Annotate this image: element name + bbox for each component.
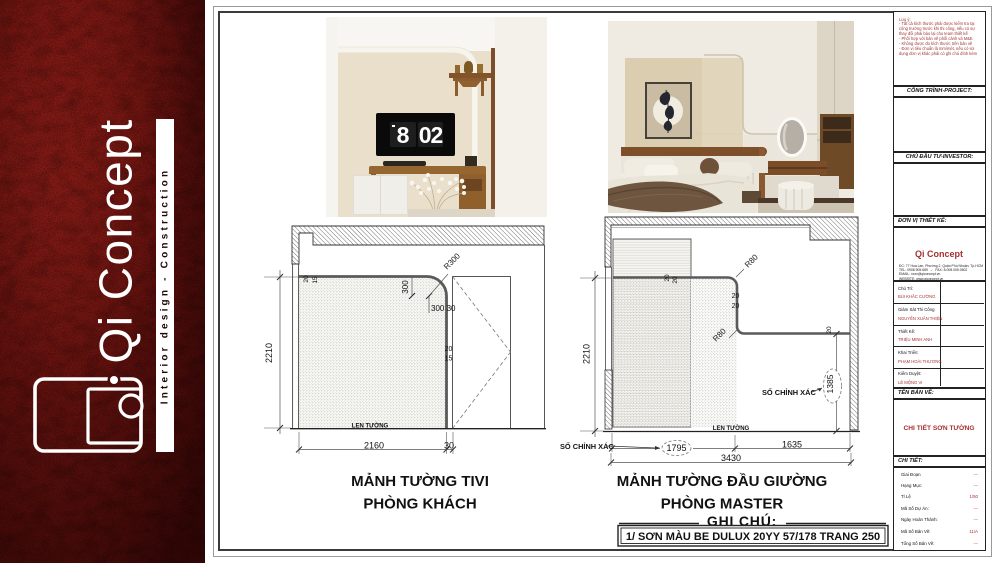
svg-text:15: 15 <box>445 356 453 363</box>
svg-text:300: 300 <box>401 280 410 294</box>
svg-text:1635: 1635 <box>782 440 802 450</box>
svg-text:SỐ CHỈNH XÁC: SỐ CHỈNH XÁC <box>560 441 614 451</box>
svg-text:15: 15 <box>312 276 319 284</box>
svg-text:PHÒNG KHÁCH: PHÒNG KHÁCH <box>363 495 476 513</box>
svg-text:20: 20 <box>732 293 740 300</box>
svg-text:20: 20 <box>672 276 679 284</box>
svg-text:300 30: 300 30 <box>431 304 456 313</box>
svg-text:PHÒNG MASTER: PHÒNG MASTER <box>661 495 784 513</box>
svg-text:LEN TƯỜNG: LEN TƯỜNG <box>713 424 750 432</box>
svg-text:30: 30 <box>444 441 454 451</box>
svg-text:20: 20 <box>732 303 740 310</box>
svg-text:1/ SƠN MÀU BE DULUX 20YY 57/17: 1/ SƠN MÀU BE DULUX 20YY 57/178 TRANG 25… <box>626 530 880 543</box>
svg-text:LEN TƯỜNG: LEN TƯỜNG <box>352 422 389 430</box>
svg-text:2210: 2210 <box>264 343 274 363</box>
svg-text:MẢNH TƯỜNG TIVI: MẢNH TƯỜNG TIVI <box>351 472 489 490</box>
svg-text:20: 20 <box>664 274 671 282</box>
svg-text:1385: 1385 <box>825 374 835 393</box>
svg-text:20: 20 <box>826 326 833 334</box>
svg-text:20: 20 <box>303 275 310 283</box>
svg-text:1795: 1795 <box>666 443 686 453</box>
svg-text:20: 20 <box>445 346 453 353</box>
svg-text:R300: R300 <box>442 251 462 271</box>
svg-text:MẢNH TƯỜNG ĐẦU GIƯỜNG: MẢNH TƯỜNG ĐẦU GIƯỜNG <box>617 472 827 490</box>
svg-text:SỐ CHỈNH XÁC: SỐ CHỈNH XÁC <box>762 387 816 397</box>
svg-text:R80: R80 <box>743 252 760 269</box>
svg-text:2210: 2210 <box>582 344 592 364</box>
svg-text:2160: 2160 <box>364 441 384 451</box>
svg-text:3430: 3430 <box>721 453 741 463</box>
